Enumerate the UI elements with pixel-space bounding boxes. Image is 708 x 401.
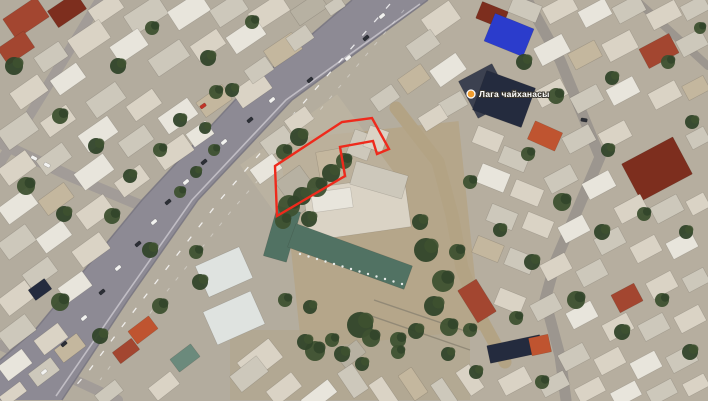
roof-skylight bbox=[392, 280, 394, 282]
tree bbox=[358, 313, 374, 329]
tree bbox=[699, 22, 706, 29]
tree bbox=[314, 342, 326, 354]
tree bbox=[415, 323, 425, 333]
tree bbox=[419, 214, 429, 224]
roof-skylight bbox=[384, 278, 386, 280]
tree bbox=[397, 332, 407, 342]
roof-skylight bbox=[316, 258, 318, 260]
tree bbox=[691, 115, 699, 123]
tree bbox=[59, 293, 70, 304]
tree bbox=[456, 244, 466, 254]
tree bbox=[213, 144, 220, 151]
tree bbox=[25, 177, 36, 188]
tree bbox=[611, 71, 619, 79]
tree bbox=[298, 128, 309, 139]
tree bbox=[13, 57, 24, 68]
tree bbox=[251, 15, 259, 23]
tree bbox=[685, 225, 693, 233]
roof-skylight bbox=[350, 268, 352, 270]
tree bbox=[179, 186, 186, 193]
tree bbox=[59, 108, 69, 118]
roof-skylight bbox=[401, 283, 403, 285]
satellite-imagery[interactable]: Лага чайханасы bbox=[0, 0, 708, 401]
tree bbox=[447, 347, 455, 355]
tree bbox=[515, 311, 523, 319]
poi-marker[interactable]: Лага чайханасы bbox=[467, 89, 550, 99]
tree bbox=[284, 293, 292, 301]
tree bbox=[343, 153, 353, 163]
tree bbox=[95, 138, 105, 148]
tree bbox=[607, 143, 615, 151]
tree bbox=[448, 318, 459, 329]
tree bbox=[195, 166, 202, 173]
tree bbox=[561, 193, 572, 204]
tree bbox=[283, 144, 293, 154]
satellite-map-view[interactable]: Лага чайханасы bbox=[0, 0, 708, 401]
tree bbox=[207, 50, 217, 60]
poi-label[interactable]: Лага чайханасы bbox=[479, 89, 550, 99]
restaurant-dot-icon[interactable] bbox=[467, 90, 475, 98]
tree bbox=[204, 122, 211, 129]
roof-skylight bbox=[333, 263, 335, 265]
tree bbox=[111, 208, 121, 218]
tree bbox=[575, 291, 586, 302]
tree bbox=[469, 323, 477, 331]
tree bbox=[195, 245, 203, 253]
tree bbox=[304, 334, 314, 344]
tree bbox=[541, 375, 549, 383]
roof-skylight bbox=[375, 275, 377, 277]
roof-skylight bbox=[324, 260, 326, 262]
tree bbox=[433, 297, 445, 309]
tree bbox=[63, 206, 73, 216]
roof-skylight bbox=[358, 270, 360, 272]
tree bbox=[361, 357, 369, 365]
tree bbox=[397, 345, 405, 353]
tree bbox=[282, 213, 292, 223]
tree bbox=[99, 328, 109, 338]
tree bbox=[689, 344, 699, 354]
tree bbox=[441, 271, 454, 284]
tree bbox=[643, 207, 651, 215]
tree bbox=[308, 211, 318, 221]
tree bbox=[555, 88, 565, 98]
building-roof bbox=[528, 334, 551, 356]
tree bbox=[331, 333, 339, 341]
tree bbox=[151, 21, 159, 29]
tree bbox=[531, 254, 541, 264]
tree bbox=[199, 274, 209, 284]
tree bbox=[527, 147, 535, 155]
tree bbox=[117, 58, 127, 68]
tree bbox=[231, 83, 239, 91]
tree bbox=[341, 346, 351, 356]
tree bbox=[309, 300, 317, 308]
tree bbox=[424, 239, 438, 253]
roof-skylight bbox=[367, 273, 369, 275]
tree bbox=[469, 175, 477, 183]
tree bbox=[523, 54, 533, 64]
roof-skylight bbox=[307, 255, 309, 257]
roof-skylight bbox=[341, 265, 343, 267]
tree bbox=[661, 293, 669, 301]
tree bbox=[215, 85, 223, 93]
tree bbox=[621, 324, 631, 334]
tree bbox=[499, 223, 507, 231]
tree bbox=[159, 298, 169, 308]
tree bbox=[475, 365, 483, 373]
tree bbox=[179, 113, 187, 121]
tree bbox=[667, 55, 675, 63]
tree bbox=[601, 224, 611, 234]
tree bbox=[370, 329, 381, 340]
tree bbox=[159, 143, 167, 151]
tree bbox=[149, 242, 159, 252]
tree bbox=[129, 169, 137, 177]
roof-skylight bbox=[299, 253, 301, 255]
